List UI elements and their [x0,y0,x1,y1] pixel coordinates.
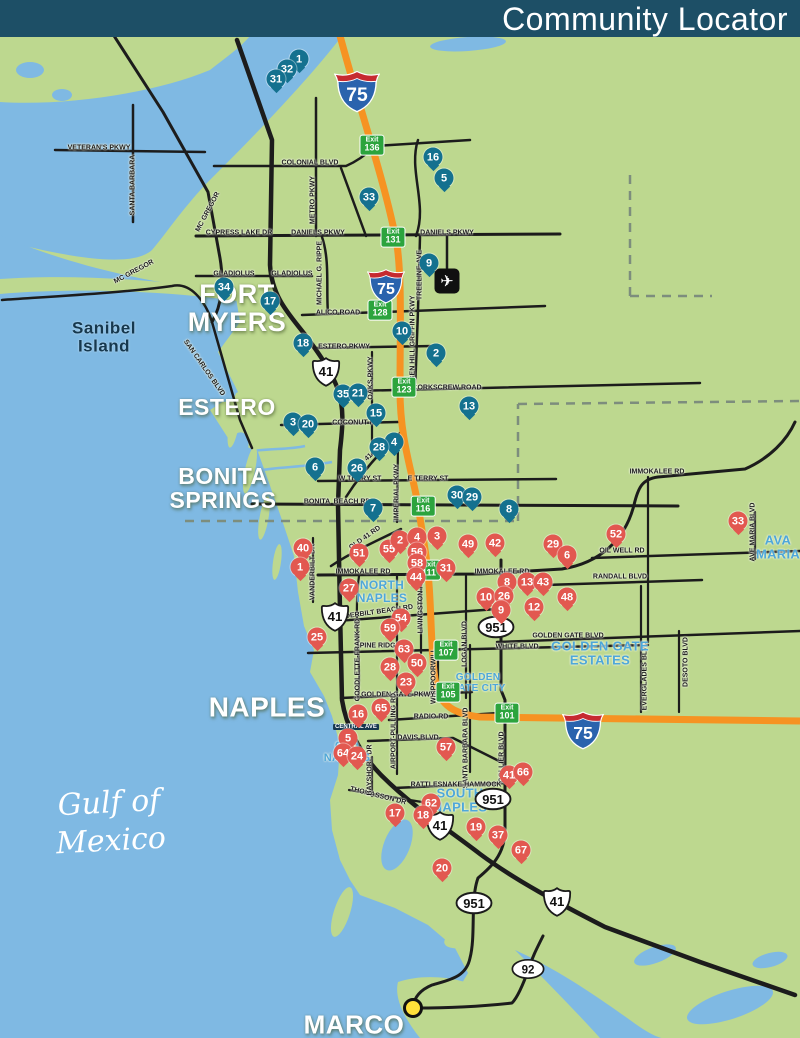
community-map-pin-blue-26[interactable]: 26 [348,459,367,478]
exit-badge: Exit107 [433,640,458,661]
road-label: WHITE BLVD [495,644,538,651]
community-map-pin-red-3[interactable]: 3 [428,527,447,546]
exit-badge: Exit101 [494,703,519,724]
city-label: BONITASPRINGS [169,465,276,513]
community-locator-map: Community Locator VETERAN'S PKWYSANTA BA… [0,0,800,1038]
city-label: MARCO [304,1011,405,1038]
road-label: GLADIOLUS [271,271,312,278]
community-map-pin-blue-21[interactable]: 21 [349,384,368,403]
svg-text:41: 41 [433,818,448,833]
area-label: AVAMARIA [756,534,800,563]
road-label: MC GREGOR [113,259,155,286]
app-header: Community Locator [0,0,800,37]
community-map-pin-blue-18[interactable]: 18 [294,334,313,353]
city-label: NAPLES [209,692,326,721]
community-map-pin-blue-5[interactable]: 5 [435,169,454,188]
community-map-pin-blue-17[interactable]: 17 [261,292,280,311]
state-road-oval-shield: 951 [474,787,512,811]
road-label: ALICO ROAD [316,310,360,317]
community-map-pin-blue-9[interactable]: 9 [420,254,439,273]
community-map-pin-red-18[interactable]: 18 [414,806,433,825]
community-map-pin-blue-15[interactable]: 15 [367,404,386,423]
area-label: GOLDEN GATEESTATES [551,640,649,669]
road-label: LOGAN BLVD [462,621,469,667]
community-map-pin-red-1[interactable]: 1 [291,558,310,577]
state-road-oval-shield: 951 [455,891,493,915]
road-label: SANTA BARBARA [130,155,137,216]
community-map-pin-blue-8[interactable]: 8 [500,500,519,519]
road-label: IMMOKALEE RD [630,469,685,476]
community-map-pin-blue-33[interactable]: 33 [360,188,379,207]
road-label: GOODLETTE-FRANK RD [355,619,362,701]
community-map-pin-red-16[interactable]: 16 [349,705,368,724]
community-map-pin-red-40[interactable]: 40 [294,539,313,558]
community-map-pin-blue-7[interactable]: 7 [364,499,383,518]
community-map-pin-red-52[interactable]: 52 [607,525,626,544]
community-map-pin-red-43[interactable]: 43 [534,573,553,592]
community-map-pin-red-49[interactable]: 49 [459,535,478,554]
community-map-pin-red-48[interactable]: 48 [558,588,577,607]
road-label: DESOTO BLVD [683,637,690,687]
community-map-pin-red-20[interactable]: 20 [433,859,452,878]
community-map-pin-blue-2[interactable]: 2 [427,344,446,363]
road-label: MC GREGOR [195,191,222,233]
community-map-pin-red-31[interactable]: 31 [437,559,456,578]
state-road-oval-shield: 92 [511,958,545,979]
community-map-pin-blue-10[interactable]: 10 [393,322,412,341]
community-map-pin-red-12[interactable]: 12 [525,598,544,617]
community-map-pin-blue-31[interactable]: 31 [267,70,286,89]
svg-text:41: 41 [550,894,565,909]
community-map-pin-red-59[interactable]: 59 [381,619,400,638]
page-title: Community Locator [502,3,800,35]
road-label: BONITA [304,499,330,506]
community-map-pin-red-44[interactable]: 44 [407,568,426,587]
road-label: CYPRESS LAKE DR [206,230,273,237]
svg-text:75: 75 [346,85,368,106]
community-map-pin-blue-29[interactable]: 29 [463,488,482,507]
community-map-pin-red-51[interactable]: 51 [350,544,369,563]
svg-text:951: 951 [482,792,504,807]
road-label: AIRPORT-PULLING RD [391,693,398,769]
interstate-75-shield: 75 [367,266,405,304]
us-41-shield: 41 [320,601,350,632]
exit-badge: Exit131 [380,227,405,248]
map-overlay: VETERAN'S PKWYSANTA BARBARAMC GREGORCYPR… [0,0,800,1038]
road-label: OAKS PKWY [368,356,375,399]
community-map-pin-red-67[interactable]: 67 [512,841,531,860]
community-map-pin-blue-6[interactable]: 6 [306,458,325,477]
road-label: DAVIS BLVD [397,735,438,742]
area-label: NORTHNAPLES [357,579,407,605]
community-map-pin-blue-28[interactable]: 28 [370,438,389,457]
exit-badge: Exit136 [359,135,384,156]
svg-text:951: 951 [485,620,507,635]
road-label: RANDALL BLVD [593,574,647,581]
exit-badge: Exit123 [391,377,416,398]
road-label: DANIELS PKWY [420,230,474,237]
road-label: E TERRY ST [408,476,449,483]
road-label: OIL WELL RD [599,548,644,555]
road-label: ESTERO PKWY [318,344,370,351]
community-map-pin-red-9[interactable]: 9 [492,601,511,620]
community-map-pin-red-66[interactable]: 66 [514,763,533,782]
community-map-pin-red-37[interactable]: 37 [489,826,508,845]
road-label: BEN HILL GRIFFIN PKWY [410,295,417,380]
community-map-pin-red-25[interactable]: 25 [308,628,327,647]
water-body-label: Gulf ofMexico [53,782,167,863]
community-map-pin-red-42[interactable]: 42 [486,534,505,553]
community-map-pin-red-23[interactable]: 23 [397,673,416,692]
community-map-pin-red-27[interactable]: 27 [340,579,359,598]
community-map-pin-blue-20[interactable]: 20 [299,415,318,434]
community-map-pin-red-65[interactable]: 65 [372,699,391,718]
community-map-pin-red-33[interactable]: 33 [729,512,748,531]
road-label: GOLDEN GATE PKWY [361,692,435,699]
community-map-pin-red-6[interactable]: 6 [558,546,577,565]
road-label: COLONIAL BLVD [282,160,339,167]
city-label: SanibelIsland [72,319,136,354]
road-label: DANIELS PKWY [291,230,345,237]
road-label: MICHAEL G. RIPPE [317,241,324,305]
svg-text:41: 41 [319,364,334,379]
road-label: GLADIOLUS [213,271,254,278]
interstate-75-shield: 75 [334,67,380,113]
community-map-pin-blue-13[interactable]: 13 [460,397,479,416]
interstate-75-shield: 75 [562,708,604,750]
road-label: CORKSCREW ROAD [412,385,481,392]
community-map-pin-red-50[interactable]: 50 [408,654,427,673]
svg-text:75: 75 [573,723,593,743]
us-41-shield: 41 [542,886,572,917]
city-label: ESTERO [178,396,276,420]
svg-text:75: 75 [377,281,395,298]
road-label: VETERAN'S PKWY [68,145,131,152]
road-label: IMMOKALEE RD [336,569,391,576]
community-map-pin-red-19[interactable]: 19 [467,818,486,837]
road-label: METRO PKWY [310,176,317,224]
svg-text:951: 951 [463,896,485,911]
community-map-pin-blue-34[interactable]: 34 [215,278,234,297]
svg-text:41: 41 [328,609,343,624]
road-label: SAN CARLOS BLVD [182,339,226,398]
community-map-pin-red-24[interactable]: 24 [348,747,367,766]
community-map-pin-red-2[interactable]: 2 [391,531,410,550]
community-map-pin-red-57[interactable]: 57 [437,738,456,757]
svg-text:92: 92 [522,964,535,976]
road-label: SANTA BARBARA BLVD [463,708,470,789]
road-label: IMPERIAL PKWY [394,464,401,520]
destination-dot-icon [403,998,423,1018]
community-map-pin-red-28[interactable]: 28 [381,658,400,677]
road-label: RADIO RD [414,714,449,721]
exit-badge: Exit116 [411,496,436,517]
us-41-shield: 41 [311,356,341,387]
community-map-pin-blue-16[interactable]: 16 [424,148,443,167]
community-map-pin-red-17[interactable]: 17 [386,804,405,823]
airport-icon: ✈ [435,269,460,294]
exit-badge: Exit105 [435,682,460,703]
